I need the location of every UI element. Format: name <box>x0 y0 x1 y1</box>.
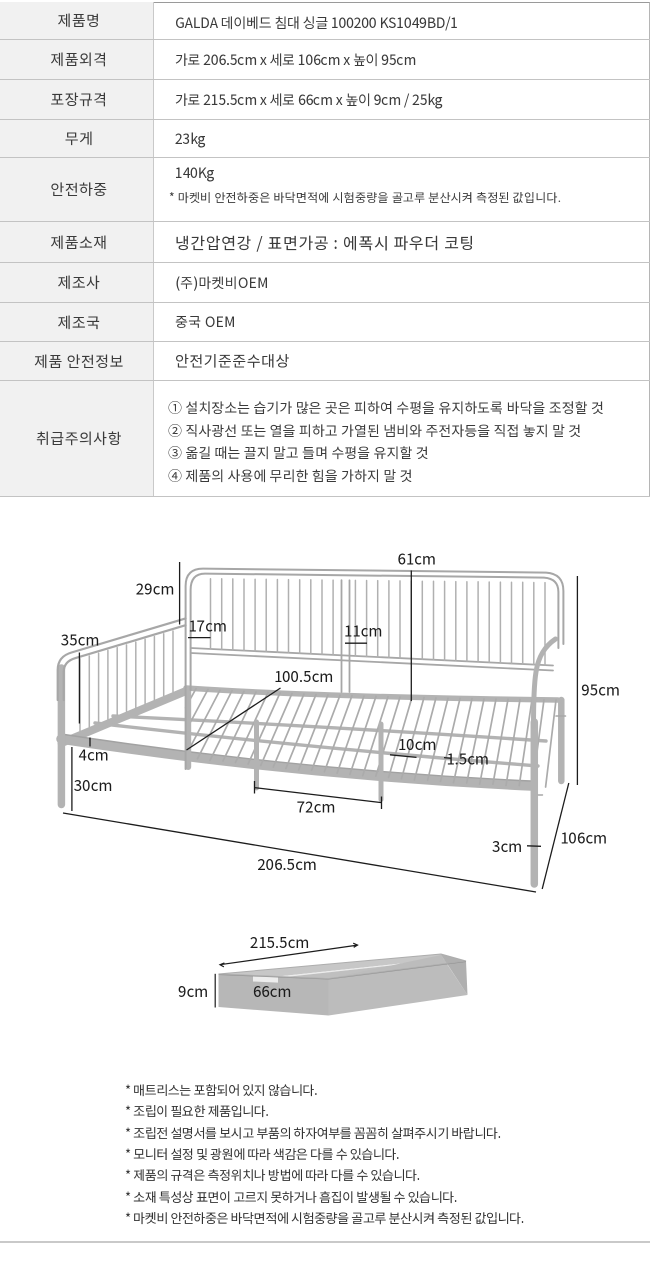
svg-text:35cm: 35cm <box>61 630 99 651</box>
svg-text:10cm: 10cm <box>398 734 436 755</box>
svg-text:61cm: 61cm <box>397 549 435 570</box>
svg-text:106cm: 106cm <box>560 828 607 849</box>
svg-text:17cm: 17cm <box>188 616 226 637</box>
svg-text:1.5cm: 1.5cm <box>446 749 488 770</box>
svg-text:4cm: 4cm <box>79 745 109 766</box>
svg-text:72cm: 72cm <box>297 797 335 818</box>
svg-text:66cm: 66cm <box>253 981 291 1002</box>
svg-text:11cm: 11cm <box>344 621 382 642</box>
svg-text:206.5cm: 206.5cm <box>257 854 316 875</box>
svg-text:100.5cm: 100.5cm <box>274 666 333 687</box>
svg-text:95cm: 95cm <box>581 680 619 701</box>
svg-text:29cm: 29cm <box>136 579 174 600</box>
svg-text:9cm: 9cm <box>178 981 208 1002</box>
svg-text:3cm: 3cm <box>492 836 522 857</box>
svg-text:30cm: 30cm <box>74 775 112 796</box>
svg-text:215.5cm: 215.5cm <box>250 932 309 953</box>
